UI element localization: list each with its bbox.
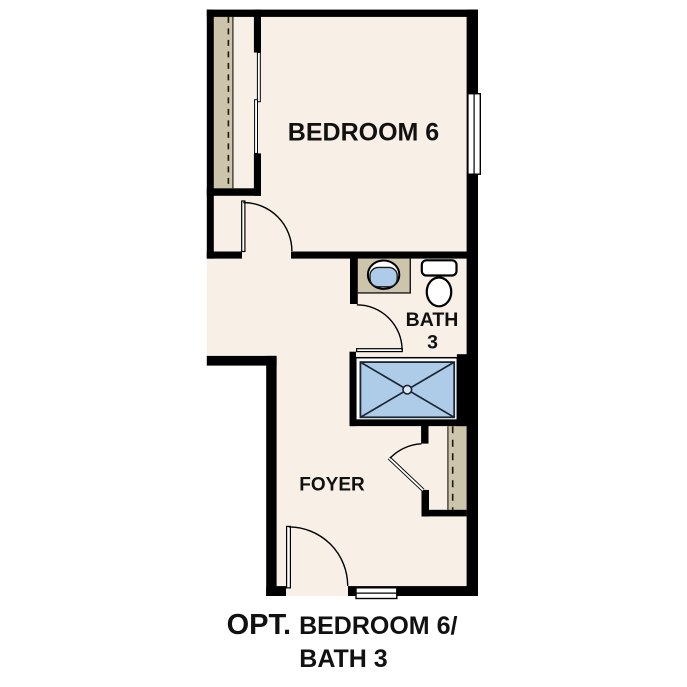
svg-text:BATH 3: BATH 3: [299, 645, 387, 673]
svg-text:OPT. BEDROOM 6/: OPT. BEDROOM 6/: [227, 609, 458, 641]
svg-text:3: 3: [427, 332, 438, 354]
svg-text:BATH: BATH: [406, 309, 459, 331]
svg-text:FOYER: FOYER: [299, 475, 365, 496]
svg-text:BEDROOM 6: BEDROOM 6: [288, 119, 439, 147]
